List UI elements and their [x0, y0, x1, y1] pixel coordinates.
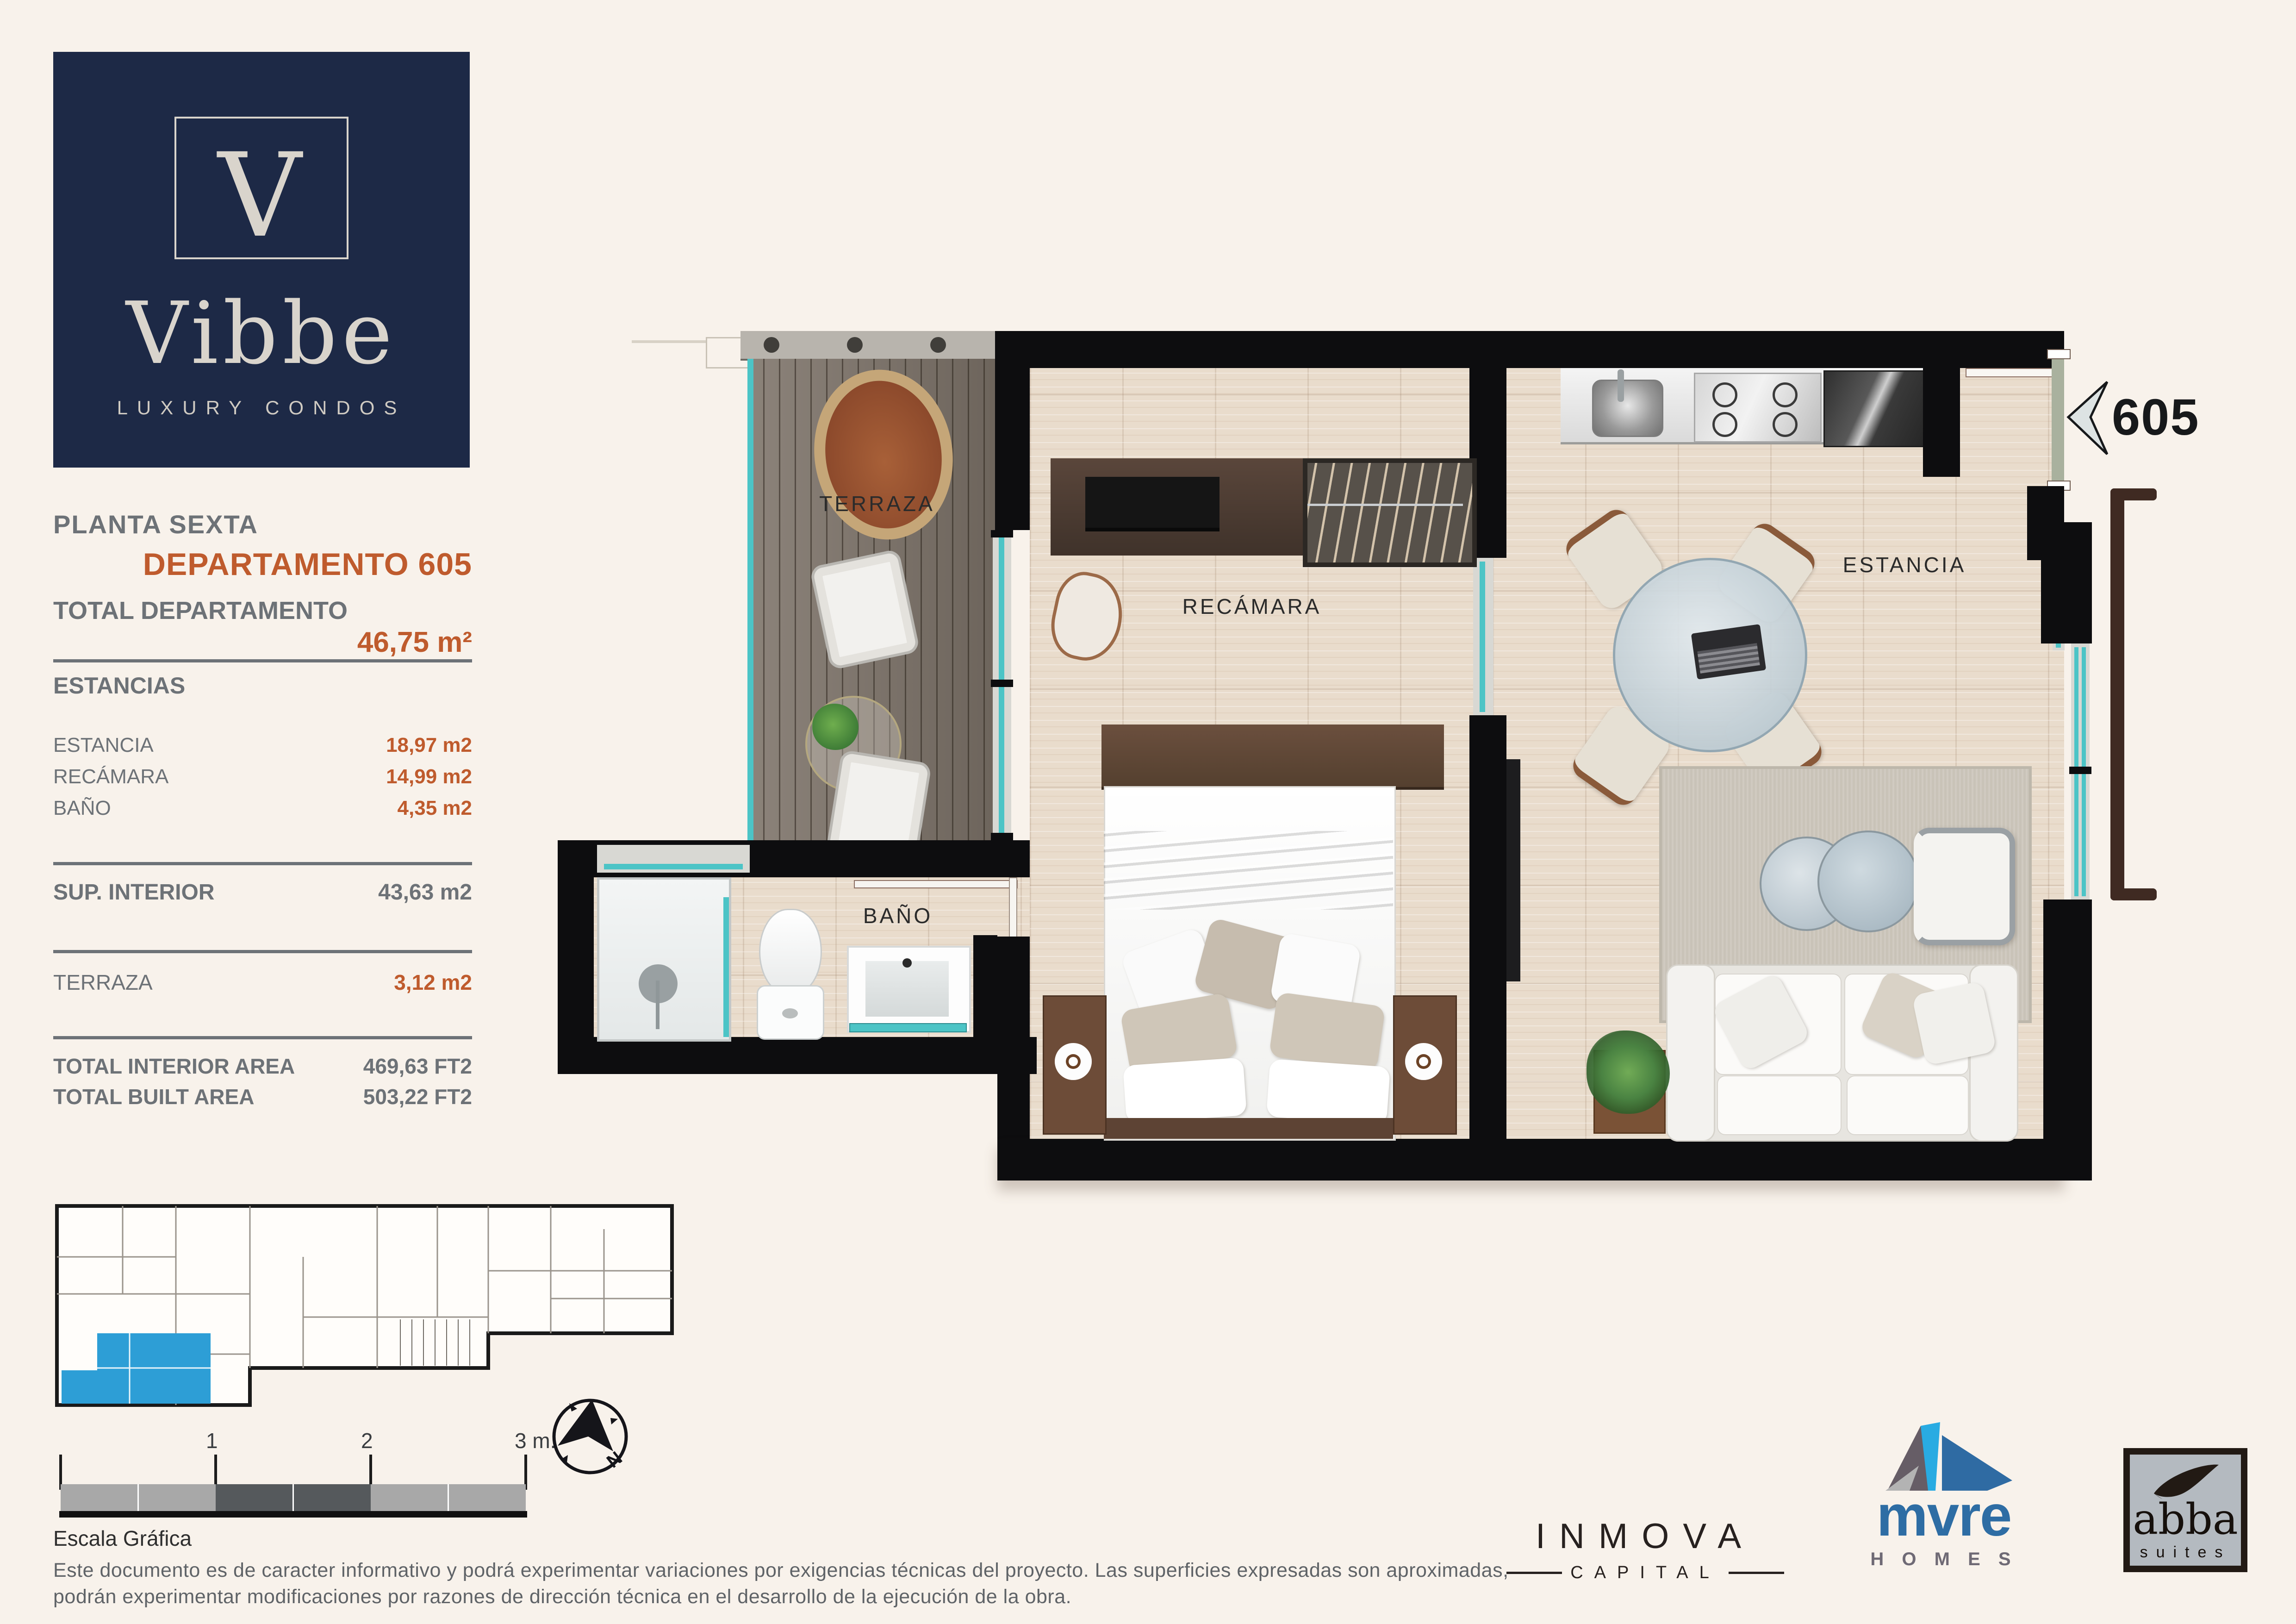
entry-wall-stub — [1923, 331, 1960, 477]
abba-name: abba — [2130, 1500, 2241, 1539]
total-built-row: TOTAL BUILT AREA 503,22 FT2 — [53, 1084, 472, 1109]
inmova-rule-right — [1729, 1572, 1784, 1574]
abba-sub: suites — [2130, 1543, 2241, 1562]
divider-1 — [53, 659, 472, 662]
brand-tagline: LUXURY CONDOS — [53, 397, 470, 419]
inmova-rule-left — [1506, 1572, 1562, 1574]
right-wall-block — [2041, 522, 2092, 643]
scale-segment — [61, 1484, 139, 1511]
kitchen-sink — [1592, 380, 1663, 437]
bed-throw-blanket — [1104, 831, 1393, 910]
toilet-button — [782, 1008, 798, 1018]
entry-door-frame-top — [2047, 349, 2071, 359]
estancia-plant — [1587, 1031, 1670, 1114]
total-dept-value: 46,75 m² — [53, 626, 472, 659]
estancia-armchair — [1914, 828, 2015, 945]
planter-post-1 — [764, 337, 779, 353]
stove-burner-3 — [1712, 412, 1737, 437]
mvre-sub: H O M E S — [1867, 1549, 2020, 1570]
kitchen-faucet — [1618, 369, 1624, 402]
sofa-seat-cushion — [1717, 1075, 1842, 1135]
total-interior-row: TOTAL INTERIOR AREA 469,63 FT2 — [53, 1054, 472, 1079]
total-built-label: TOTAL BUILT AREA — [53, 1084, 254, 1109]
bed-head-panel — [1101, 725, 1444, 790]
bed-foot-rail — [1104, 1118, 1393, 1139]
recamara-slider-glass — [1480, 562, 1485, 712]
balcony-rail-stub-bottom — [2110, 888, 2157, 900]
stove-burner-1 — [1712, 382, 1737, 407]
terraza-value: 3,12 m2 — [394, 970, 472, 995]
inmova-logo: INMOVA CAPITAL — [1506, 1516, 1784, 1583]
keyplan — [53, 1201, 676, 1410]
unit-title: DEPARTAMENTO 605 — [53, 546, 472, 582]
scale-tick-label-2: 2 — [361, 1428, 373, 1453]
area-row-value: 4,35 m2 — [398, 797, 472, 820]
balcony-rail-stub-top — [2110, 488, 2157, 500]
total-interior-label: TOTAL INTERIOR AREA — [53, 1054, 295, 1079]
sofa-pillow — [1912, 981, 1997, 1066]
coffee-table-2 — [1817, 831, 1919, 932]
abba-logo: abba suites — [2123, 1448, 2247, 1572]
scale-segment — [449, 1484, 526, 1511]
mvre-logo: mvre H O M E S — [1867, 1421, 2020, 1570]
bed-pillow — [1123, 1057, 1247, 1124]
closet-rod — [1307, 504, 1463, 506]
unit-marker-number: 605 — [2112, 388, 2200, 447]
area-row-label: ESTANCIA — [53, 734, 154, 757]
area-row-value: 14,99 m2 — [386, 765, 472, 788]
area-row-label: RECÁMARA — [53, 765, 168, 788]
room-label-estancia: ESTANCIA — [1843, 552, 1966, 577]
vanity-shelf — [849, 1023, 967, 1032]
scale-segment — [294, 1484, 371, 1511]
tv-on-console — [1085, 477, 1220, 528]
brand-logo-card: V Vibbe LUXURY CONDOS — [53, 52, 470, 468]
recamara-estancia-wall-bottom — [1469, 715, 1506, 1139]
speaker-right — [1405, 1043, 1442, 1080]
entry-door-leaf — [1966, 368, 2053, 377]
vanity-faucet — [902, 958, 912, 968]
monogram-letter: V — [174, 121, 345, 269]
balcony-rail — [2110, 488, 2124, 900]
scale-segment — [216, 1484, 294, 1511]
scale-segment — [371, 1484, 449, 1511]
disclaimer-line-2: podrán experimentar modificaciones por r… — [53, 1586, 1511, 1608]
inmova-sub: CAPITAL — [1570, 1563, 1720, 1583]
total-interior-value: 469,63 FT2 — [363, 1054, 472, 1079]
vanity-side-wall — [973, 935, 997, 1037]
area-row-recamara: RECÁMARA 14,99 m2 — [53, 765, 472, 788]
terraza-plant — [812, 704, 859, 750]
floor-title: PLANTA SEXTA — [53, 509, 258, 539]
floor-plan: TERRAZA BAÑO — [553, 323, 2201, 1193]
scale-segment — [139, 1484, 216, 1511]
brochure-page: V Vibbe LUXURY CONDOS PLANTA SEXTA DEPAR… — [0, 0, 2296, 1624]
shower-faucet — [656, 981, 660, 1029]
bathroom-door-leaf — [1009, 877, 1017, 938]
towel-bar — [854, 880, 1018, 888]
planter-post-3 — [930, 337, 946, 353]
divider-2 — [53, 862, 472, 865]
right-wall-corner — [2043, 899, 2092, 1181]
room-label-bano: BAÑO — [863, 903, 933, 928]
area-row-estancia: ESTANCIA 18,97 m2 — [53, 734, 472, 757]
divider-4 — [53, 1036, 472, 1039]
divider-3 — [53, 950, 472, 953]
speaker-left — [1055, 1043, 1092, 1080]
sup-interior-label: SUP. INTERIOR — [53, 880, 215, 905]
room-label-recamara: RECÁMARA — [1182, 594, 1322, 619]
bath-bedroom-wall-upper — [997, 840, 1030, 877]
sofa-seat-cushion — [1847, 1075, 1969, 1135]
planter-post-2 — [847, 337, 863, 353]
total-dept-label: TOTAL DEPARTAMENTO — [53, 596, 348, 625]
bed-pillow — [1266, 1059, 1390, 1125]
shower-entry-glass — [604, 864, 743, 869]
terraza-label: TERRAZA — [53, 970, 153, 995]
total-built-value: 503,22 FT2 — [363, 1084, 472, 1109]
kitchen-stove — [1694, 373, 1822, 443]
inmova-name: INMOVA — [1506, 1516, 1784, 1556]
sup-interior-row: SUP. INTERIOR 43,63 m2 — [53, 880, 472, 905]
area-row-bano: BAÑO 4,35 m2 — [53, 797, 472, 820]
estancia-slider-mullion — [2069, 767, 2091, 774]
terraza-row: TERRAZA 3,12 m2 — [53, 970, 472, 995]
area-row-value: 18,97 m2 — [386, 734, 472, 757]
vanity-basin — [865, 961, 949, 1017]
mvre-mountain-icon — [1874, 1421, 2013, 1492]
bottom-wall — [997, 1139, 2064, 1181]
estancias-heading: ESTANCIAS — [53, 672, 185, 699]
terraza-right-wall — [995, 331, 1030, 530]
kitchen-tall-cabinet — [1823, 370, 1925, 447]
terraza-window-mullion-2 — [991, 680, 1013, 687]
terraza-window-mullion-3 — [991, 833, 1013, 840]
shower-side-glass — [723, 897, 729, 1037]
shower-tray — [597, 877, 731, 1042]
stove-burner-2 — [1773, 382, 1798, 407]
room-label-terraza: TERRAZA — [819, 491, 935, 516]
sup-interior-value: 43,63 m2 — [378, 880, 472, 905]
mvre-name: mvre — [1867, 1492, 2020, 1541]
unit-marker-arrow-icon — [2066, 381, 2108, 455]
scale-caption: Escala Gráfica — [53, 1526, 192, 1551]
area-row-label: BAÑO — [53, 797, 111, 820]
tv-panel-estancia — [1506, 759, 1520, 981]
terraza-left-glass — [747, 359, 753, 840]
terraza-window-mullion-1 — [991, 530, 1013, 537]
compass-icon: N — [544, 1390, 636, 1483]
toilet-bowl — [759, 909, 822, 995]
scale-bar — [61, 1484, 526, 1511]
brand-name: Vibbe — [53, 283, 470, 383]
bathroom-bottom-wall — [558, 1037, 1037, 1074]
top-wall — [1030, 331, 2064, 368]
scale-tick-label-1: 1 — [206, 1428, 218, 1453]
scale-baseline — [59, 1511, 527, 1518]
sofa-armrest-left — [1666, 964, 1715, 1142]
entry-door-band — [2052, 352, 2064, 486]
stove-burner-4 — [1773, 412, 1798, 437]
disclaimer-line-1: Este documento es de caracter informativ… — [53, 1559, 1511, 1582]
closet — [1303, 458, 1477, 567]
